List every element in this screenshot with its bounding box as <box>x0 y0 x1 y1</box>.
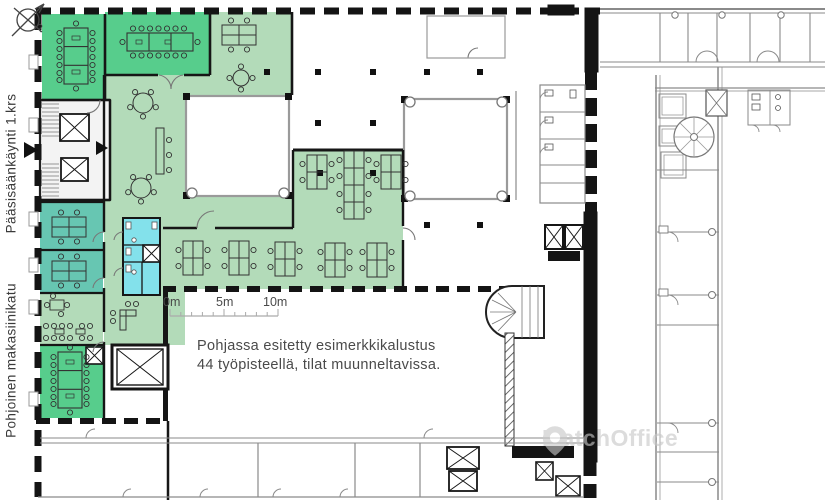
scale-tick-5m: 5m <box>216 295 233 309</box>
atrium-1 <box>183 93 292 199</box>
floor-plan-drawing: P <box>0 0 825 500</box>
plan-annotation: Pohjassa esitetty esimerkkikalustus 44 t… <box>197 337 441 375</box>
spiral-staircase <box>674 117 714 157</box>
team-office-1 <box>40 202 103 250</box>
curved-staircase <box>486 286 544 338</box>
hatched-wall <box>505 333 514 446</box>
floor-plan-canvas: P Pääsisäänkäynti 1.krs Pohjoinen makasi… <box>0 0 825 500</box>
watermark: MatchOffice <box>542 425 678 452</box>
wc-cluster-right <box>540 85 585 203</box>
plan-annotation-line2: 44 työpisteellä, tilat muunneltavissa. <box>197 356 441 375</box>
label-street: Pohjoinen makasiinikatu <box>4 272 19 450</box>
elevator-pair <box>545 225 583 261</box>
open-plan-lounge <box>40 293 103 345</box>
map-pin-icon <box>542 425 568 457</box>
plan-annotation-line1: Pohjassa esitetty esimerkkikalustus <box>197 337 441 356</box>
wc-cluster-wing <box>748 90 790 132</box>
label-main-entrance: Pääsisäänkäynti 1.krs <box>4 89 19 239</box>
scale-tick-10m: 10m <box>263 295 287 309</box>
atrium-2 <box>401 96 510 202</box>
scale-tick-0m: 0m <box>163 295 180 309</box>
bottom-rooms <box>38 429 583 497</box>
scale-bar <box>170 309 278 316</box>
team-offices <box>40 202 103 293</box>
elevator-icon-wing <box>706 90 727 116</box>
right-section <box>427 16 585 496</box>
elevator-pair-bottom <box>447 447 479 491</box>
